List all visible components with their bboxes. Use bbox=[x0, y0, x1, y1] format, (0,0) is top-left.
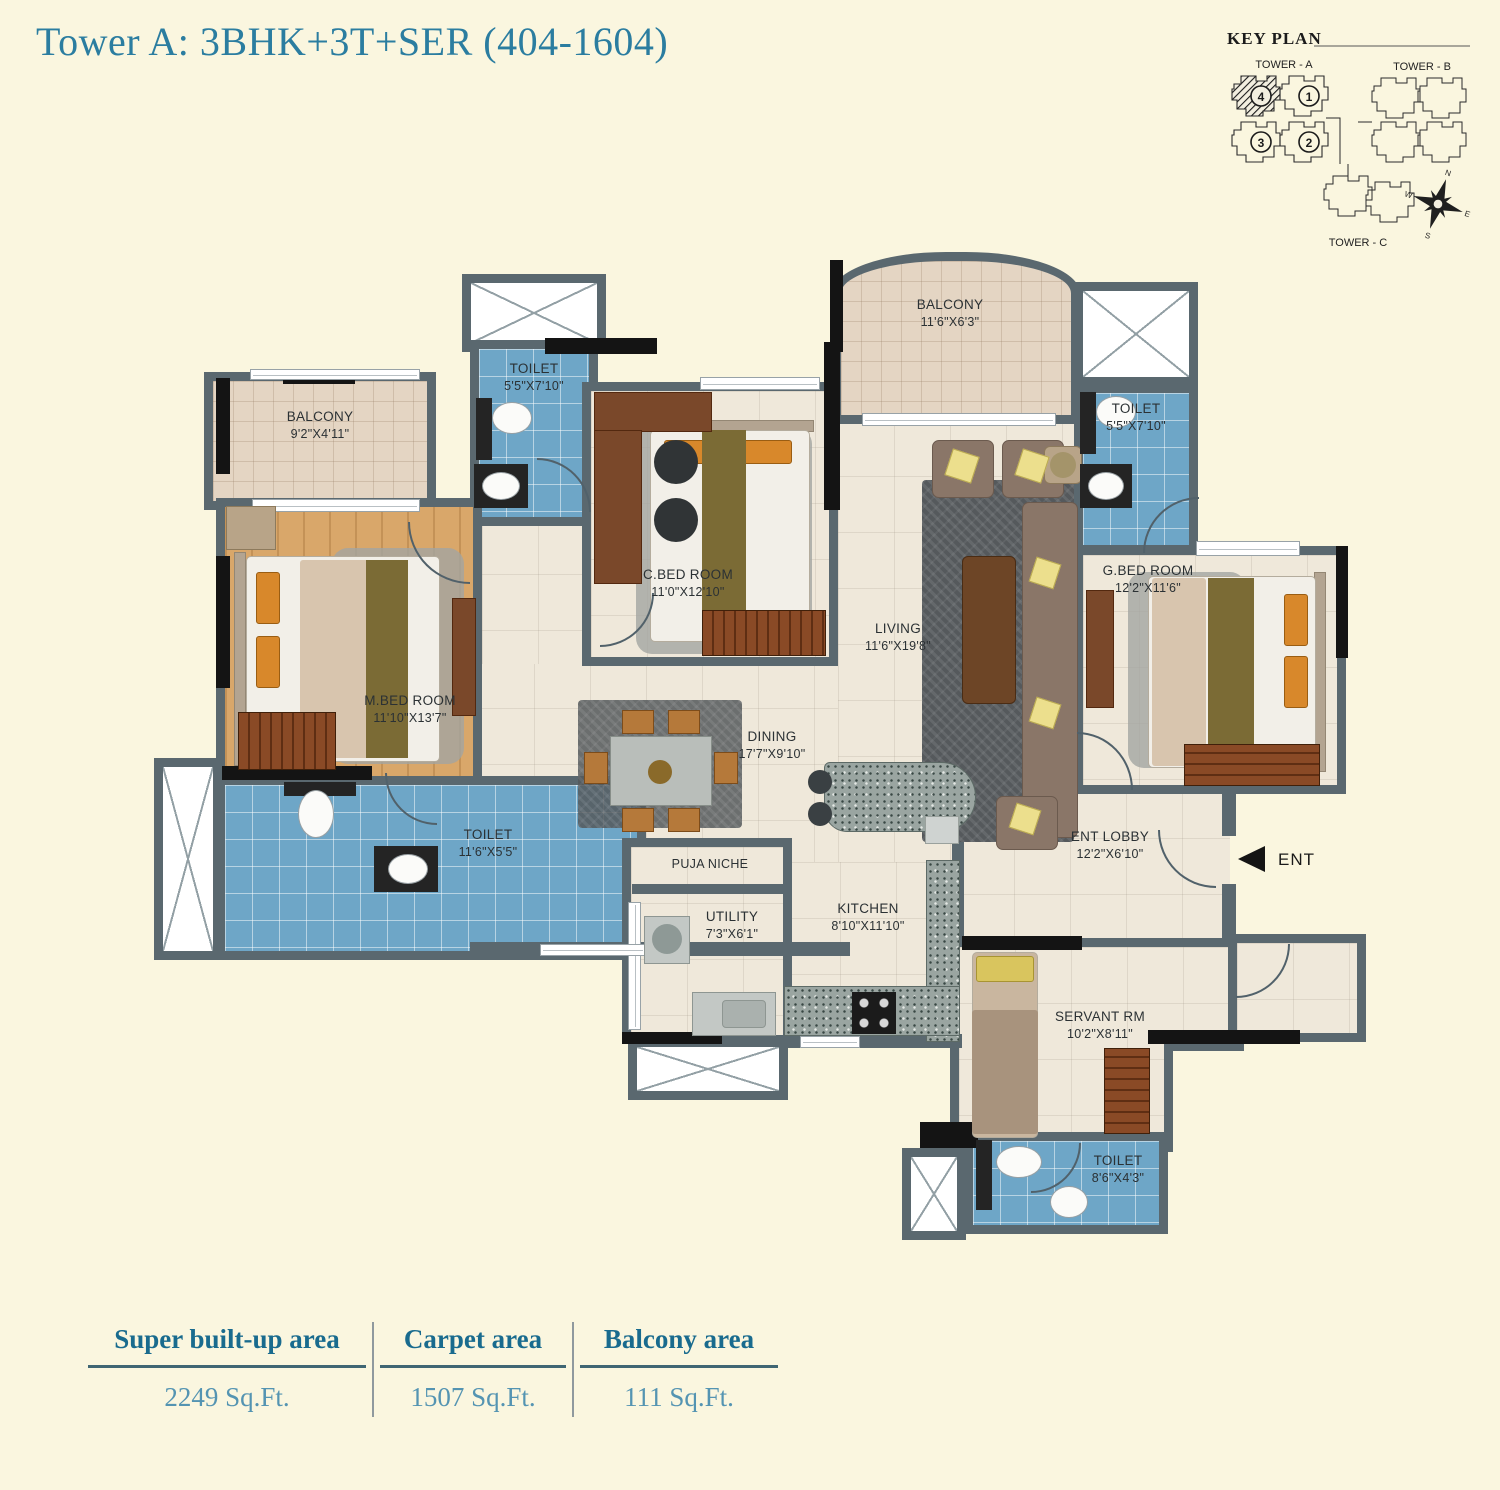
room-name: TOILET bbox=[504, 360, 564, 378]
area-col-carpet: Carpet area 1507 Sq.Ft. bbox=[372, 1322, 572, 1417]
wardrobe bbox=[1104, 1048, 1150, 1134]
window bbox=[540, 944, 646, 956]
room-label-toilet-servant: TOILET 8'6"X4'3" bbox=[1092, 1152, 1145, 1186]
area-col-header: Carpet area bbox=[380, 1322, 566, 1368]
room-dims: 11'0"X12'10" bbox=[643, 584, 733, 601]
stove-icon bbox=[852, 992, 896, 1034]
duct-shaft-bottom bbox=[628, 1038, 788, 1100]
room-dims: 8'6"X4'3" bbox=[1092, 1170, 1145, 1187]
room-name: SERVANT RM bbox=[1055, 1008, 1145, 1026]
wardrobe bbox=[702, 610, 826, 656]
toilet-counter bbox=[1080, 392, 1096, 454]
room-label-utility: UTILITY 7'3"X6'1" bbox=[706, 908, 759, 942]
unit-2-marker: 2 bbox=[1306, 136, 1313, 150]
screenshot-root: { "page": { "title": "Tower A: 3BHK+3T+S… bbox=[0, 0, 1500, 1490]
wall-segment bbox=[545, 338, 657, 354]
study-desk bbox=[594, 430, 642, 584]
room-label-dining: DINING 17'7"X9'10" bbox=[739, 728, 806, 762]
room-name: DINING bbox=[739, 728, 806, 746]
tower-a-footprint bbox=[1232, 76, 1328, 162]
room-dims: 11'6"X19'8" bbox=[865, 638, 931, 655]
room-label-toilet-mbed: TOILET 5'5"X7'10" bbox=[504, 360, 564, 394]
washbasin-icon bbox=[388, 854, 428, 884]
area-col-value: 1507 Sq.Ft. bbox=[380, 1368, 566, 1417]
key-plan: KEY PLAN TOWER - A TOWER - B TOWER - C 4… bbox=[1222, 26, 1474, 252]
kitchen-appliance bbox=[925, 816, 959, 844]
room-dims: 5'5"X7'10" bbox=[1106, 418, 1166, 435]
room-dims: 17'7"X9'10" bbox=[739, 746, 806, 763]
plant-icon bbox=[1050, 452, 1076, 478]
wall-segment bbox=[824, 342, 840, 510]
room-label-toilet-gbed: TOILET 5'5"X7'10" bbox=[1106, 400, 1166, 434]
room-label-toilet-left: TOILET 11'6"X5'5" bbox=[459, 826, 518, 860]
washer-drum bbox=[652, 924, 682, 954]
sink-basin bbox=[722, 1000, 766, 1028]
room-name: PUJA NICHE bbox=[672, 856, 749, 873]
room-label-balcony-left: BALCONY 9'2"X4'11" bbox=[287, 408, 354, 442]
wall-segment bbox=[632, 884, 784, 894]
dining-centerpiece bbox=[648, 760, 672, 784]
key-plan-title: KEY PLAN bbox=[1227, 29, 1322, 48]
wall-segment bbox=[962, 936, 1082, 950]
desk-chair bbox=[654, 498, 698, 542]
pillow bbox=[1284, 656, 1308, 708]
key-plan-tower-b-label: TOWER - B bbox=[1393, 61, 1451, 73]
pillow bbox=[976, 956, 1034, 982]
room-name: LIVING bbox=[865, 620, 931, 638]
dining-chair bbox=[584, 752, 608, 784]
room-dims: 7'3"X6'1" bbox=[706, 926, 759, 943]
tower-c-footprint bbox=[1324, 176, 1414, 222]
window bbox=[1196, 541, 1300, 556]
area-col-value: 2249 Sq.Ft. bbox=[88, 1368, 366, 1417]
stool bbox=[808, 770, 832, 794]
pillow bbox=[740, 440, 792, 464]
footprint-connector bbox=[1326, 118, 1372, 178]
dining-chair bbox=[622, 808, 654, 832]
wall-segment bbox=[830, 260, 843, 352]
dining-chair bbox=[668, 808, 700, 832]
entrance-label: ENT bbox=[1278, 850, 1315, 870]
study-desk bbox=[594, 392, 712, 432]
wall-segment bbox=[216, 556, 230, 688]
room-dims: 11'6"X6'3" bbox=[917, 314, 984, 331]
window bbox=[862, 413, 1056, 426]
compass-w: W bbox=[1403, 189, 1413, 200]
wall-segment bbox=[1148, 1030, 1300, 1044]
unit-1-marker: 1 bbox=[1306, 90, 1313, 104]
area-col-header: Balcony area bbox=[580, 1322, 778, 1368]
compass-icon: N E S W bbox=[1393, 158, 1474, 250]
blanket bbox=[1152, 578, 1206, 766]
washbasin-icon bbox=[482, 472, 520, 500]
washbasin-icon bbox=[1088, 472, 1124, 500]
room-label-servant: SERVANT RM 10'2"X8'11" bbox=[1055, 1008, 1145, 1042]
nightstand bbox=[226, 506, 276, 550]
room-dims: 11'6"X5'5" bbox=[459, 844, 518, 861]
area-col-value: 111 Sq.Ft. bbox=[580, 1368, 778, 1417]
room-dims: 12'2"X6'10" bbox=[1071, 846, 1149, 863]
room-name: BALCONY bbox=[287, 408, 354, 426]
blanket bbox=[972, 1010, 1038, 1134]
toilet-fixture-icon bbox=[298, 790, 334, 838]
window bbox=[252, 499, 420, 512]
room-label-balcony-top: BALCONY 11'6"X6'3" bbox=[917, 296, 984, 330]
area-col-header: Super built-up area bbox=[88, 1322, 366, 1368]
toilet-fixture-icon bbox=[492, 402, 532, 434]
wardrobe bbox=[1086, 590, 1114, 708]
room-dims: 5'5"X7'10" bbox=[504, 378, 564, 395]
window bbox=[800, 1036, 860, 1048]
desk-chair bbox=[654, 440, 698, 484]
page-title: Tower A: 3BHK+3T+SER (404-1604) bbox=[36, 18, 668, 65]
room-label-cbed: C.BED ROOM 11'0"X12'10" bbox=[643, 566, 733, 600]
room-balcony-top bbox=[832, 252, 1080, 424]
room-name: UTILITY bbox=[706, 908, 759, 926]
toilet-counter bbox=[476, 398, 492, 460]
room-label-gbed: G.BED ROOM 12'2"X11'6" bbox=[1103, 562, 1194, 596]
room-dims: 12'2"X11'6" bbox=[1103, 580, 1194, 597]
pillow bbox=[256, 636, 280, 688]
tower-b-footprint bbox=[1372, 78, 1466, 162]
compass-e: E bbox=[1463, 209, 1471, 219]
room-name: KITCHEN bbox=[831, 900, 904, 918]
wardrobe bbox=[1184, 744, 1320, 786]
sofa bbox=[1022, 502, 1078, 838]
room-dims: 11'10"X13'7" bbox=[364, 710, 456, 727]
key-plan-tower-a-label: TOWER - A bbox=[1255, 59, 1313, 71]
passage-floor bbox=[482, 518, 586, 664]
wall-segment bbox=[920, 1122, 978, 1148]
area-col-balcony: Balcony area 111 Sq.Ft. bbox=[572, 1322, 784, 1417]
window bbox=[250, 369, 420, 380]
wall-segment bbox=[216, 378, 230, 474]
compass-s: S bbox=[1424, 231, 1432, 241]
washbasin-icon bbox=[1050, 1186, 1088, 1218]
lift-shaft-left bbox=[154, 758, 222, 960]
room-dims: 8'10"X11'10" bbox=[831, 918, 904, 935]
wall-segment bbox=[1336, 546, 1348, 658]
room-name: BALCONY bbox=[917, 296, 984, 314]
room-name: C.BED ROOM bbox=[643, 566, 733, 584]
pillow bbox=[1284, 594, 1308, 646]
bed-runner bbox=[1208, 578, 1254, 766]
lift-shaft-bottom bbox=[902, 1148, 966, 1240]
room-label-living: LIVING 11'6"X19'8" bbox=[865, 620, 931, 654]
room-label-mbed: M.BED ROOM 11'10"X13'7" bbox=[364, 692, 456, 726]
room-name: G.BED ROOM bbox=[1103, 562, 1194, 580]
dining-chair bbox=[668, 710, 700, 734]
bed-runner bbox=[366, 560, 408, 758]
room-label-puja: PUJA NICHE bbox=[672, 856, 749, 873]
lift-shaft-right bbox=[1074, 282, 1198, 386]
compass-n: N bbox=[1444, 168, 1452, 178]
room-name: ENT LOBBY bbox=[1071, 828, 1149, 846]
room-name: M.BED ROOM bbox=[364, 692, 456, 710]
wall-segment bbox=[1222, 884, 1236, 944]
window bbox=[628, 902, 641, 1030]
wall-notch bbox=[1164, 1042, 1244, 1152]
room-name: TOILET bbox=[1106, 400, 1166, 418]
pillow bbox=[256, 572, 280, 624]
dining-chair bbox=[622, 710, 654, 734]
wardrobe bbox=[238, 712, 336, 770]
room-label-kitchen: KITCHEN 8'10"X11'10" bbox=[831, 900, 904, 934]
stool bbox=[808, 802, 832, 826]
entrance-arrow-icon bbox=[1238, 846, 1265, 872]
wall-segment bbox=[1222, 782, 1236, 836]
room-dims: 10'2"X8'11" bbox=[1055, 1026, 1145, 1043]
key-plan-tower-c-label: TOWER - C bbox=[1329, 237, 1388, 249]
window bbox=[700, 377, 820, 390]
room-name: TOILET bbox=[1092, 1152, 1145, 1170]
room-name: TOILET bbox=[459, 826, 518, 844]
unit-markers: 4 1 3 2 bbox=[1251, 86, 1319, 152]
room-dims: 9'2"X4'11" bbox=[287, 426, 354, 443]
area-table: Super built-up area 2249 Sq.Ft. Carpet a… bbox=[82, 1322, 784, 1417]
dining-chair bbox=[714, 752, 738, 784]
unit-4-marker: 4 bbox=[1258, 90, 1265, 104]
unit-3-marker: 3 bbox=[1258, 136, 1265, 150]
coffee-table bbox=[962, 556, 1016, 704]
toilet-counter bbox=[976, 1140, 992, 1210]
room-label-ent-lobby: ENT LOBBY 12'2"X6'10" bbox=[1071, 828, 1149, 862]
area-col-super-built-up: Super built-up area 2249 Sq.Ft. bbox=[82, 1322, 372, 1417]
